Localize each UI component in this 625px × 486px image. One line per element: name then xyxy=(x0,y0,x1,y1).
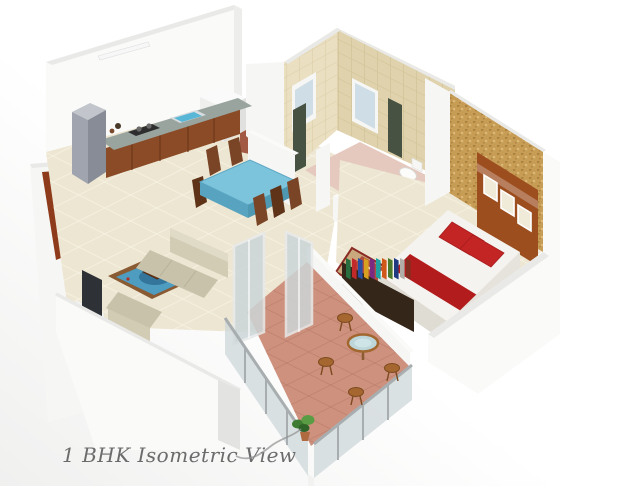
books xyxy=(346,258,411,279)
bedroom-side-wall xyxy=(425,78,450,206)
jar xyxy=(115,123,121,129)
stool xyxy=(385,364,400,373)
apartment-isometric-view: 1 BHK Isometric View xyxy=(0,0,625,486)
refrigerator-side xyxy=(88,110,106,184)
jar xyxy=(110,129,115,134)
book xyxy=(346,258,351,279)
book xyxy=(394,258,399,279)
living-front-wall-shade xyxy=(218,380,240,450)
book xyxy=(370,258,375,279)
refrigerator-front xyxy=(72,112,88,184)
book xyxy=(364,258,369,279)
stool xyxy=(349,388,364,397)
book xyxy=(400,258,405,279)
shower-panel-2 xyxy=(388,98,402,158)
book xyxy=(406,258,411,279)
burner xyxy=(146,123,151,128)
bath-partition-1 xyxy=(316,143,330,212)
book xyxy=(358,258,363,279)
stool xyxy=(319,358,334,367)
rug-dot xyxy=(126,277,129,280)
balcony-table-glass xyxy=(355,339,372,348)
book xyxy=(352,258,357,279)
burner xyxy=(136,126,141,131)
book xyxy=(382,258,387,279)
plant-leaf xyxy=(302,415,315,425)
book xyxy=(376,258,381,279)
isometric-render-canvas: 1 BHK Isometric View xyxy=(0,0,625,486)
stool xyxy=(338,314,353,323)
book xyxy=(388,258,393,279)
kitchen-back-wall-edge xyxy=(234,5,242,106)
caption-text: 1 BHK Isometric View xyxy=(62,443,297,467)
